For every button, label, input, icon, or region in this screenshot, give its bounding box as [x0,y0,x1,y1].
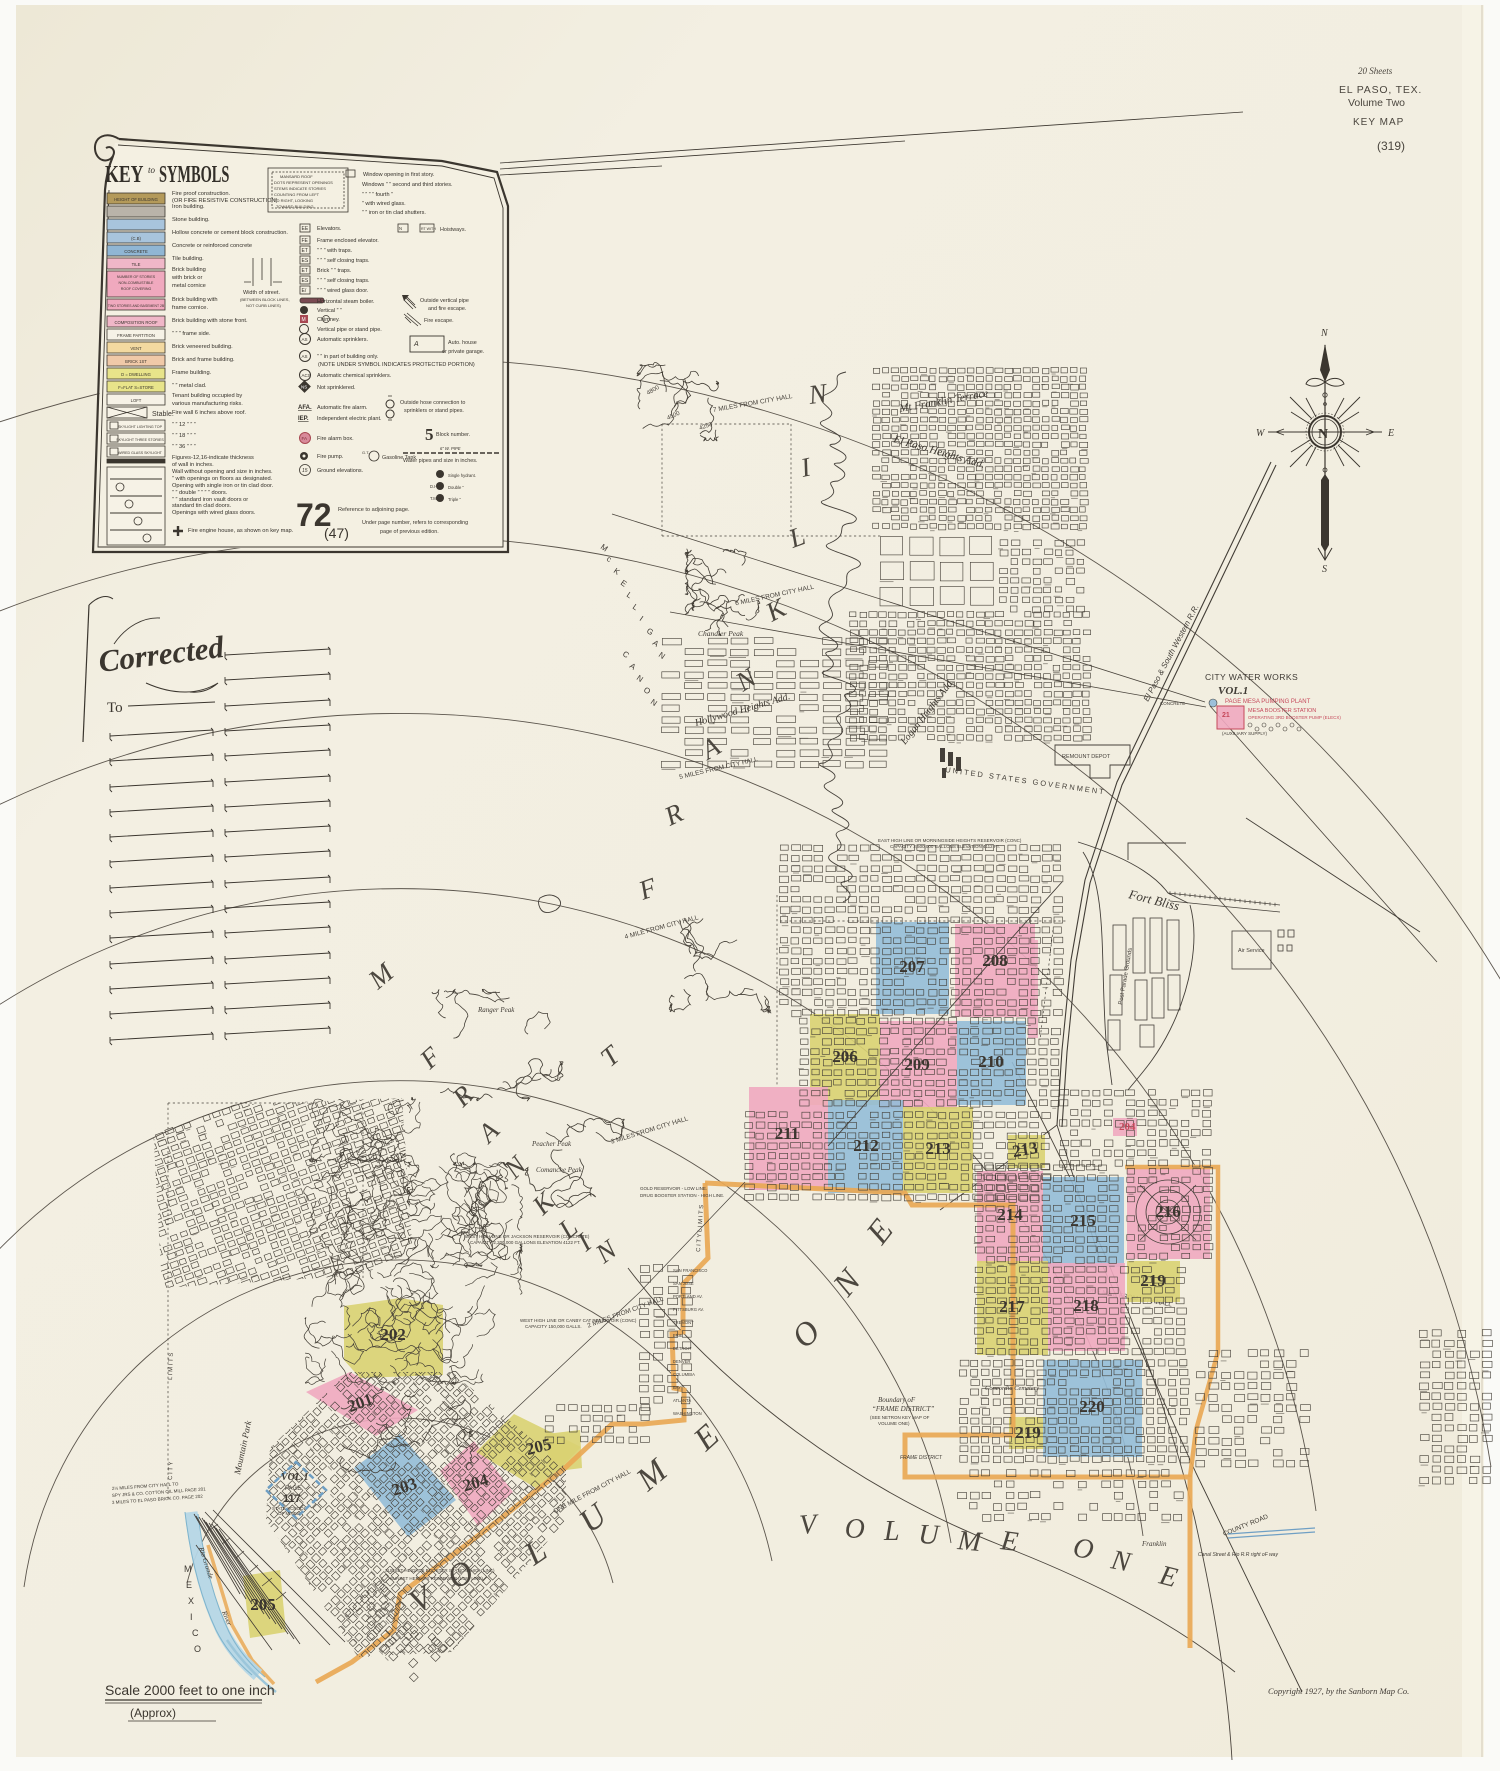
svg-text:TREMONT: TREMONT [673,1320,694,1325]
svg-text:Ranger Peak: Ranger Peak [477,1006,515,1014]
svg-text:Comanche Peak: Comanche Peak [536,1166,583,1174]
svg-text:DENVER: DENVER [673,1359,690,1364]
svg-text:COLUMBIA: COLUMBIA [673,1372,695,1377]
svg-text:SAN JOSE: SAN JOSE [673,1281,694,1286]
svg-text:ATLANTA: ATLANTA [673,1398,691,1403]
svg-text:DETROIT: DETROIT [673,1346,692,1351]
svg-text:PITTSBURG AV.: PITTSBURG AV. [673,1307,704,1312]
svg-text:WASHINGTON: WASHINGTON [673,1411,702,1416]
svg-text:Peacher Peak: Peacher Peak [531,1140,572,1148]
svg-text:Chandler Peak: Chandler Peak [698,629,744,638]
svg-text:SAN FRANCISCO: SAN FRANCISCO [673,1268,708,1273]
svg-text:PORTLAND AV.: PORTLAND AV. [673,1294,703,1299]
svg-text:BAY: BAY [673,1385,681,1390]
svg-text:ERIE: ERIE [673,1333,683,1338]
